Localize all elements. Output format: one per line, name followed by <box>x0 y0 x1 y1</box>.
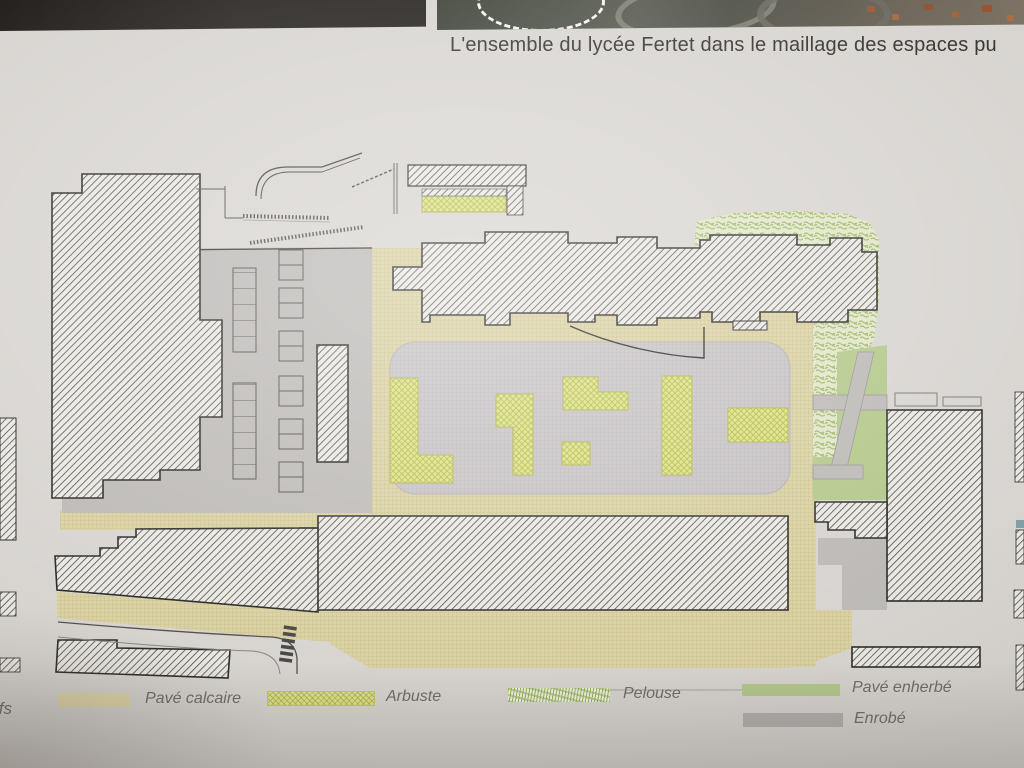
right-edge-fragment-1 <box>1015 392 1024 482</box>
legend-swatch-pelouse <box>508 688 610 702</box>
legend-label-pelouse: Pelouse <box>623 685 681 703</box>
legend-swatch-arbuste <box>267 691 375 706</box>
shrub-strip-street <box>422 196 506 212</box>
north-wall-fragment <box>507 186 523 215</box>
east-building-annex <box>815 502 887 538</box>
legend-swatch-enrobe <box>743 713 843 727</box>
legend-label-pave-enherbe: Pavé enherbé <box>852 679 952 697</box>
right-edge-fragment-3 <box>1014 590 1024 618</box>
legend-swatch-pave-enherbe <box>742 684 840 696</box>
left-edge-fragment-3 <box>0 658 20 672</box>
west-building <box>52 174 222 498</box>
left-edge-building-fragment <box>0 418 16 540</box>
southwest-corner-building <box>56 640 230 678</box>
north-street-wall <box>408 165 526 186</box>
wall-strip-above-shrubs <box>422 189 506 196</box>
legend-swatch-pave-calcaire <box>58 693 130 707</box>
east-building <box>887 410 982 601</box>
edge-text-fragment: ifs <box>0 699 12 719</box>
right-edge-fragment-2 <box>1016 530 1024 564</box>
legend-label-enrobe: Enrobé <box>854 710 906 728</box>
lycee-south-building <box>300 516 788 610</box>
legend-label-arbuste: Arbuste <box>386 688 441 706</box>
right-edge-fragment-4 <box>1016 645 1024 690</box>
parking-canopy <box>317 345 348 462</box>
lycee-north-building <box>393 232 877 325</box>
photo-of-site-plan-board: L'ensemble du lycée Fertet dans le maill… <box>0 0 1024 768</box>
building-ledge <box>733 321 767 330</box>
east-building-stairs <box>895 393 981 406</box>
legend-label-pave-calcaire: Pavé calcaire <box>145 690 241 708</box>
site-plan-drawing <box>0 0 1024 768</box>
right-edge-color-mark <box>1016 520 1024 528</box>
southeast-strip-building <box>852 647 980 667</box>
left-edge-fragment-2 <box>0 592 16 616</box>
